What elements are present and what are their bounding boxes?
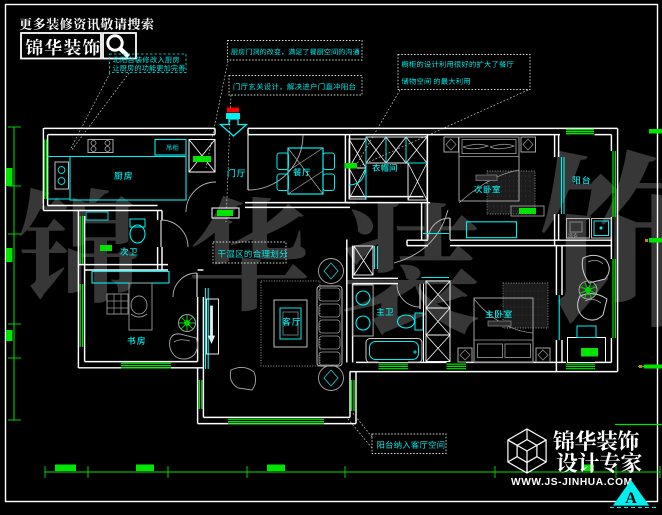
- svg-text:A: A: [625, 490, 637, 507]
- svg-text:WWW.JS-JINHUA.COM: WWW.JS-JINHUA.COM: [511, 477, 633, 488]
